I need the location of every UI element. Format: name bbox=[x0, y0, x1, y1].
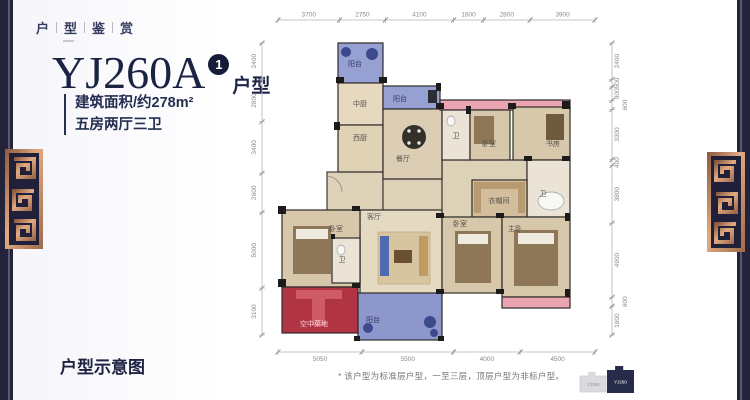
room-label-bath-1: 卫 bbox=[453, 132, 460, 140]
furniture bbox=[417, 129, 420, 132]
room-kitchen-west bbox=[338, 125, 383, 172]
dim-value: 5050 bbox=[313, 356, 328, 363]
header-dash bbox=[63, 40, 74, 42]
room-label-sky-garden: 空中菜地 bbox=[300, 319, 328, 328]
wall-segment bbox=[352, 283, 360, 288]
room-wardrobe-strip-bottom bbox=[502, 297, 570, 308]
dim-value: 3400 bbox=[251, 140, 258, 155]
fixture bbox=[337, 245, 345, 255]
lattice-ornament-left-icon bbox=[5, 149, 43, 249]
room-label-bedroom-1: 卧室 bbox=[482, 139, 496, 148]
furniture bbox=[474, 189, 481, 213]
dim-value: 5000 bbox=[251, 243, 258, 258]
furniture bbox=[341, 47, 351, 57]
dim-value: 4500 bbox=[550, 356, 565, 363]
wall-segment bbox=[496, 289, 504, 294]
dim-value: 900 bbox=[614, 88, 621, 99]
header-char: 赏 bbox=[120, 18, 133, 37]
plan-caption: 户型示意图 bbox=[60, 353, 145, 378]
dim-value: 3100 bbox=[251, 304, 258, 319]
wall-segment bbox=[438, 336, 444, 341]
header-separator bbox=[112, 22, 113, 33]
dim-value: 4100 bbox=[412, 12, 427, 19]
wall-segment bbox=[336, 77, 344, 83]
room-label-bath-3: 卫 bbox=[339, 256, 346, 264]
room-label-bath-2: 卫 bbox=[540, 190, 547, 198]
room-bath-3 bbox=[332, 238, 360, 283]
dim-value: 500 bbox=[614, 77, 621, 88]
keyplan-building-notch bbox=[615, 366, 623, 371]
room-label-closet: 衣帽间 bbox=[489, 196, 510, 205]
dim-value: 1800 bbox=[461, 12, 476, 19]
dim-value: 600 bbox=[622, 99, 629, 110]
wall-segment bbox=[278, 279, 286, 287]
dim-value: 3300 bbox=[614, 127, 621, 142]
room-label-balcony-top: 阳台 bbox=[348, 59, 362, 68]
furniture bbox=[402, 125, 426, 149]
furniture bbox=[518, 233, 554, 244]
wall-segment bbox=[565, 289, 570, 297]
specs-block: 建筑面积/约278m² 五房两厅三卫 bbox=[64, 94, 193, 135]
furniture bbox=[363, 323, 373, 333]
header-separator bbox=[84, 22, 85, 33]
dim-value: 2800 bbox=[500, 12, 515, 19]
wall-segment bbox=[379, 77, 387, 83]
furniture bbox=[380, 236, 389, 276]
dim-value: 600 bbox=[622, 296, 629, 307]
furniture bbox=[296, 229, 328, 239]
room-label-kitchen-chinese: 中厨 bbox=[353, 99, 367, 108]
room-label-living-room: 客厅 bbox=[367, 212, 381, 221]
building-area-text: 建筑面积/约278m² bbox=[75, 94, 193, 113]
wall-segment bbox=[436, 289, 444, 294]
lattice-ornament-right-icon bbox=[707, 152, 745, 252]
dim-value: 2800 bbox=[251, 93, 258, 108]
hallway bbox=[383, 179, 442, 210]
furniture bbox=[474, 182, 525, 189]
wall-segment bbox=[508, 103, 516, 109]
keyplan-label: YJ260 bbox=[614, 380, 627, 385]
furniture bbox=[458, 234, 488, 244]
header-char: 鉴 bbox=[92, 18, 105, 37]
furniture bbox=[419, 236, 428, 276]
room-layout-text: 五房两厅三卫 bbox=[75, 116, 193, 135]
header-char: 型 bbox=[64, 18, 77, 37]
wall-segment bbox=[354, 336, 360, 341]
wall-segment bbox=[436, 103, 444, 109]
dim-value: 4900 bbox=[614, 252, 621, 267]
room-label-kitchen-west: 西厨 bbox=[353, 134, 367, 142]
dim-value: 5500 bbox=[401, 356, 416, 363]
wall-segment bbox=[565, 213, 570, 221]
dim-value: 2400 bbox=[251, 54, 258, 69]
dim-value: 2600 bbox=[251, 185, 258, 200]
dim-value: 400 bbox=[614, 157, 621, 168]
wall-segment bbox=[524, 156, 532, 161]
room-label-balcony-bottom: 阳台 bbox=[366, 315, 380, 324]
room-label-bedroom-2: 卧室 bbox=[329, 224, 343, 233]
section-title: 户型鉴赏 bbox=[36, 18, 133, 37]
furniture bbox=[430, 329, 438, 337]
room-label-bedroom-3: 卧室 bbox=[453, 219, 467, 228]
furniture bbox=[417, 141, 420, 144]
disclaimer-note: * 该户型为标准层户型，一至三层，顶层户型为非标户型。 bbox=[338, 370, 564, 382]
wall-segment bbox=[562, 101, 570, 109]
furniture bbox=[366, 48, 378, 60]
model-name: YJ260A bbox=[52, 50, 205, 96]
unit-number-badge: 1 bbox=[208, 54, 229, 75]
furniture bbox=[394, 250, 412, 263]
dim-value: 2750 bbox=[355, 12, 370, 19]
wall-segment bbox=[352, 206, 360, 211]
dim-value: 3900 bbox=[555, 12, 570, 19]
furniture bbox=[407, 141, 410, 144]
furniture bbox=[407, 129, 410, 132]
room-label-master-bedroom: 主卧 bbox=[508, 224, 522, 233]
furniture bbox=[518, 189, 525, 213]
keyplan-building-notch bbox=[588, 372, 596, 377]
furniture bbox=[428, 90, 437, 103]
floorplan-drawing: 阳台中厨阳台西厨餐厅卫卧室书房卫衣帽间客厅卧室卫卧室主卧空中菜地阳台370027… bbox=[230, 5, 650, 398]
wall-segment bbox=[466, 106, 471, 114]
room-label-study: 书房 bbox=[546, 139, 560, 148]
dim-value: 3800 bbox=[614, 187, 621, 202]
keyplan-label: YJ190 bbox=[587, 382, 600, 387]
furniture bbox=[474, 116, 494, 144]
wall-segment bbox=[334, 122, 340, 130]
wall-segment bbox=[436, 83, 441, 91]
dim-value: 2400 bbox=[614, 54, 621, 69]
header-char: 户 bbox=[36, 18, 49, 37]
dim-value: 3700 bbox=[302, 12, 317, 19]
wall-segment bbox=[278, 206, 286, 214]
hallway bbox=[327, 172, 383, 210]
furniture bbox=[424, 316, 436, 328]
dim-value: 1900 bbox=[614, 313, 621, 328]
room-label-dining-room: 餐厅 bbox=[396, 154, 410, 163]
fixture bbox=[447, 116, 455, 126]
furniture bbox=[546, 114, 564, 140]
room-label-balcony-middle: 阳台 bbox=[393, 94, 407, 103]
wall-segment bbox=[562, 156, 570, 161]
page: 户型鉴赏 YJ260A 1 户型 建筑面积/约278m² 五房两厅三卫 户型示意… bbox=[0, 0, 750, 400]
wall-segment bbox=[496, 213, 504, 218]
wall-segment bbox=[436, 213, 444, 218]
header-separator bbox=[56, 22, 57, 33]
dim-value: 4000 bbox=[480, 356, 495, 363]
